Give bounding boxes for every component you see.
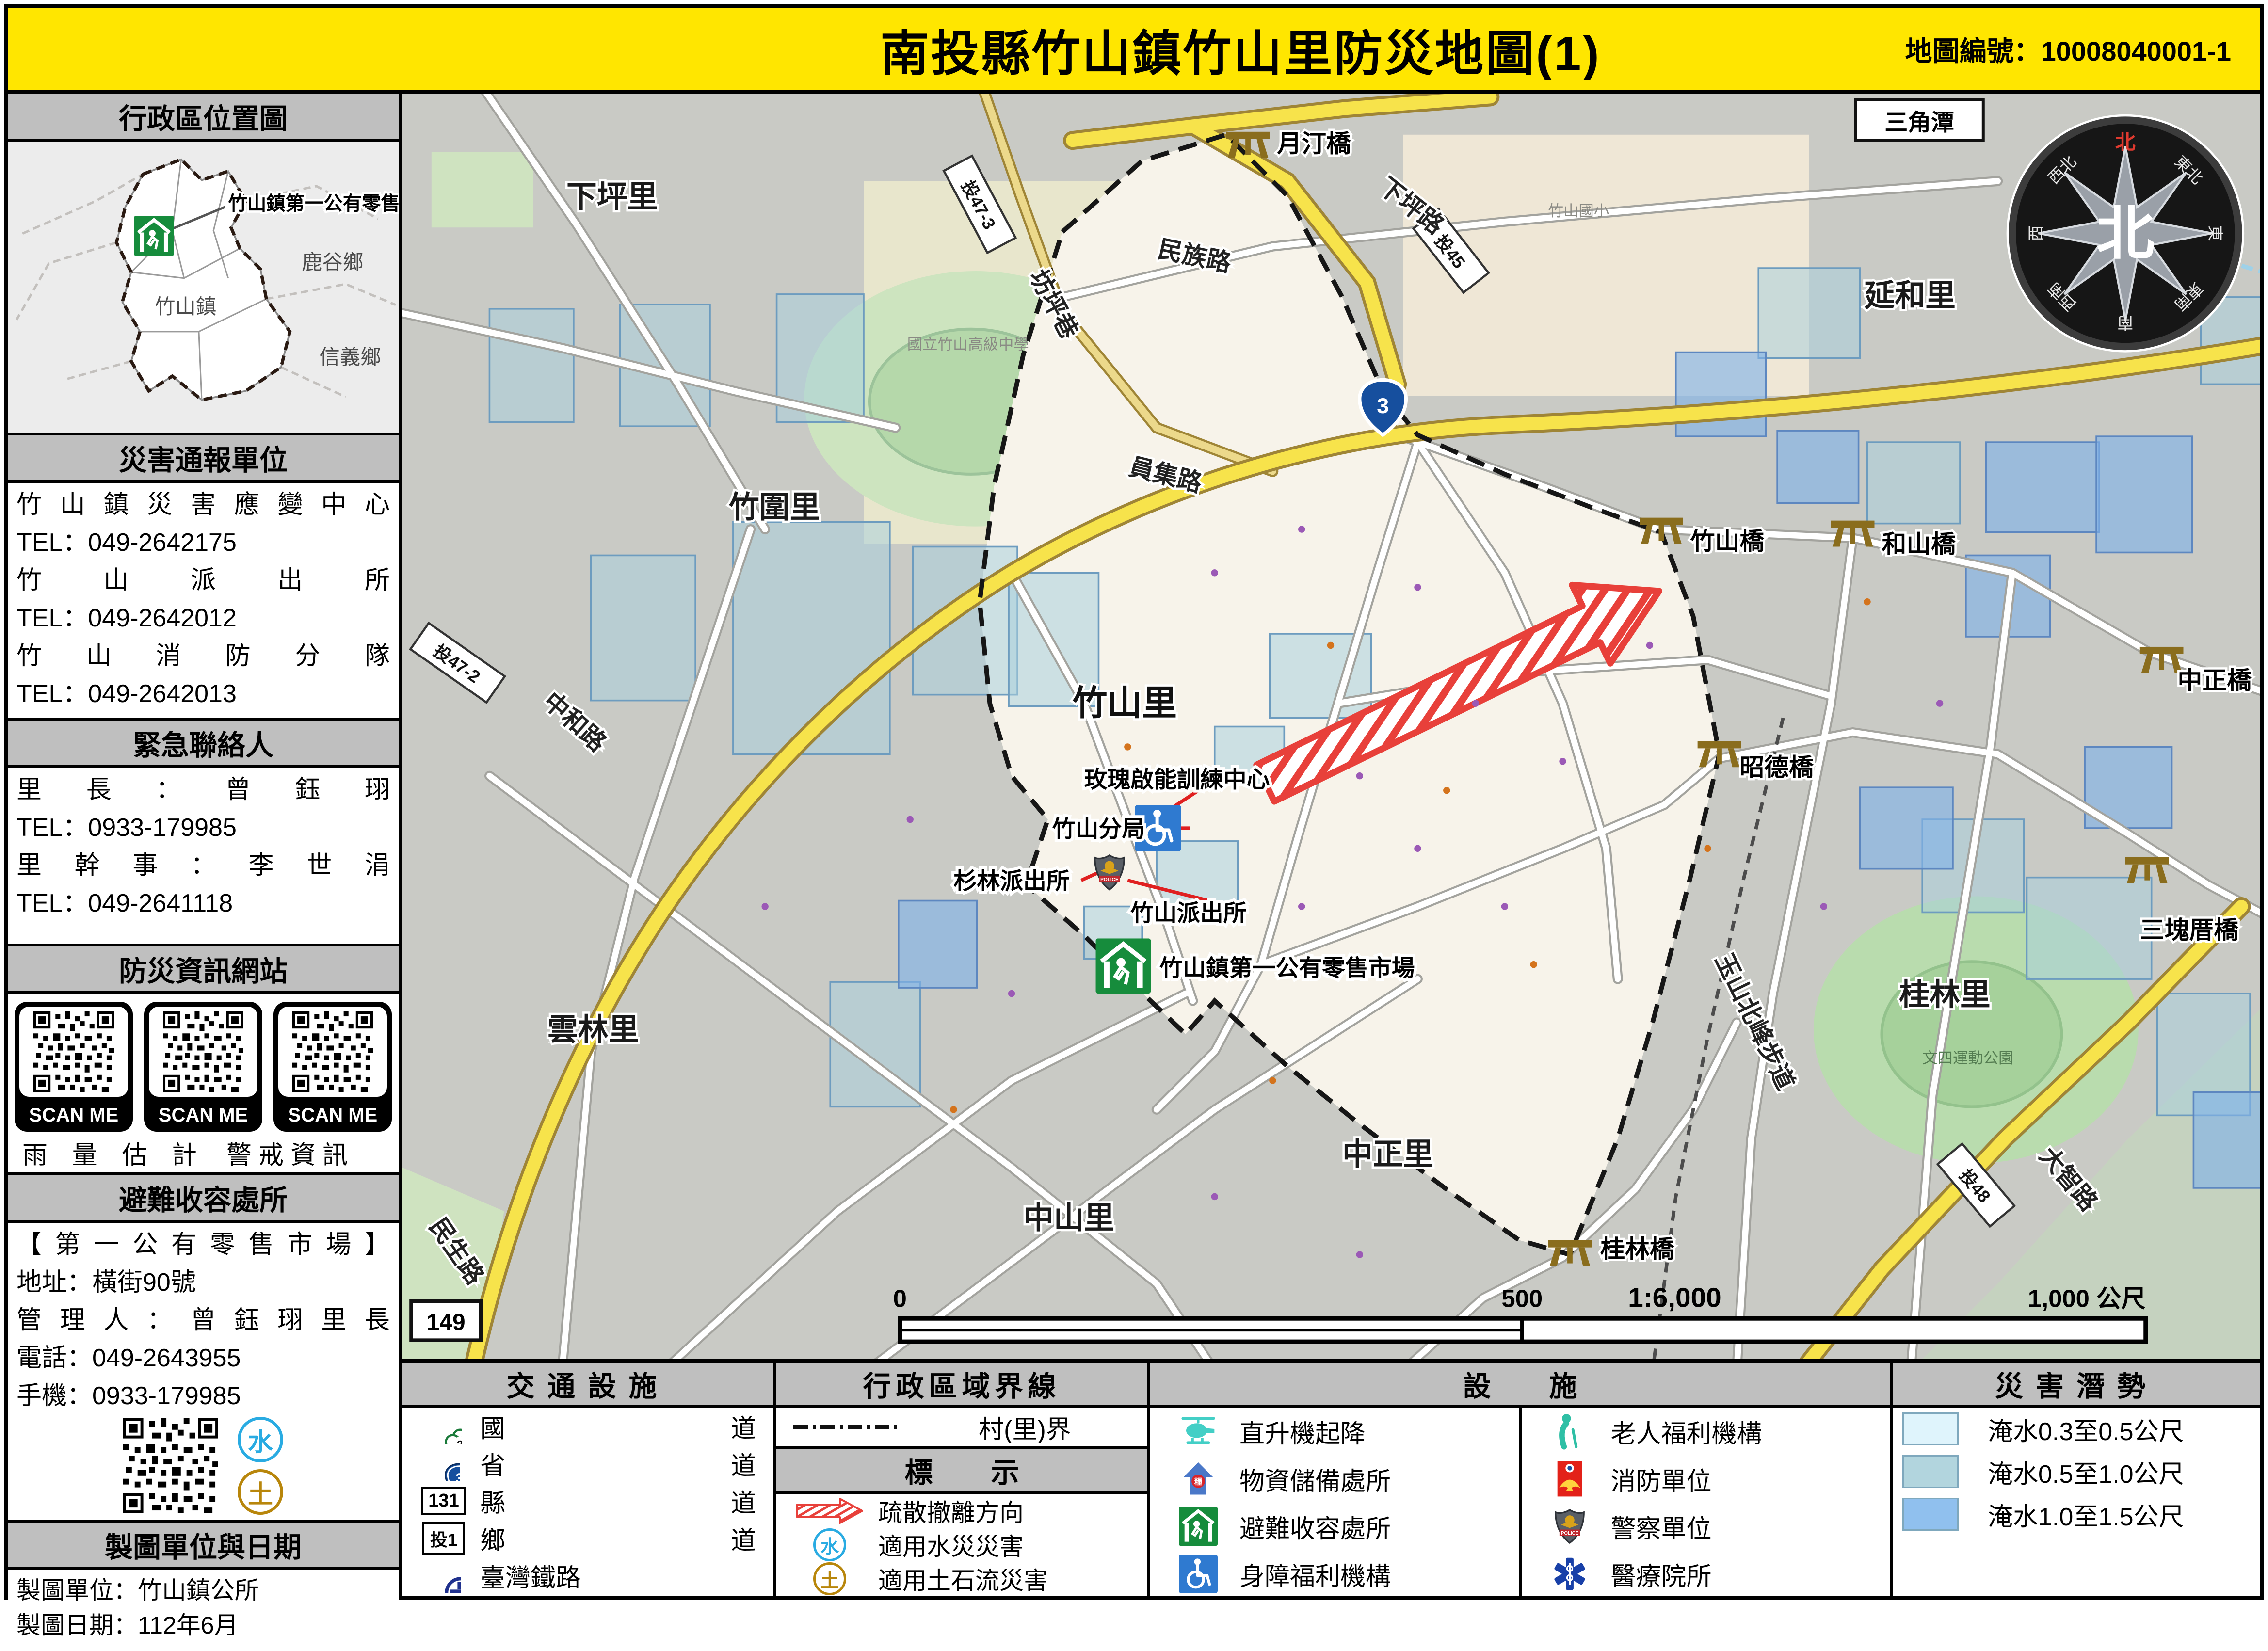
scan-me-label: SCAN ME [15,1102,133,1132]
svg-text:竹山橋: 竹山橋 [1690,527,1765,555]
caption-alert: 警戒資訊 [197,1135,384,1171]
report-unit-name: 竹山派出所 [16,561,390,599]
report-unit-tel: TEL：049-2642013 [16,675,390,713]
hazard-swatch-mid [1902,1455,1959,1488]
qr-card-rainfall: SCAN ME [15,1002,133,1132]
svg-text:1,000 公尺: 1,000 公尺 [2028,1284,2146,1312]
report-unit-tel: TEL：049-2642012 [16,599,390,637]
legend-facilities-title: 設施 [1150,1363,1890,1408]
emergency-contacts: 里長：曾鈺珝 TEL：0933-179985 里幹事：李世涓 TEL：049-2… [8,768,399,944]
hazard-swatch-deep [1902,1498,1959,1531]
qr-card-info: SCAN ME [273,1002,392,1132]
section-title-shelter: 避難收容處所 [8,1172,399,1223]
debris-applicable-badge: 土 [238,1469,283,1515]
shelter-phone: 電話：049-2643955 [16,1339,390,1377]
svg-text:南: 南 [2117,314,2133,332]
scan-me-label: SCAN ME [144,1102,262,1132]
township-road-label: 鄉道 [480,1520,769,1556]
legend-boundary-marks: 行政區域界線 村(里)界 標示 疏散撤離方向 水 適用水災災害 [773,1363,1147,1596]
section-title-contacts: 緊急聯絡人 [8,718,399,768]
provincial-road-icon [428,1446,460,1481]
village-border-label: 村(里)界 [910,1409,1140,1445]
debris-disaster-label: 適用土石流災害 [878,1561,1142,1596]
fire-unit-icon [1551,1460,1588,1497]
taiwan-rail-icon [427,1559,461,1593]
disability-welfare-label: 身障福利機構 [1239,1556,1512,1592]
elderly-welfare-label: 老人福利機構 [1611,1413,1883,1450]
hazard-deep-label: 淹水1.0至1.5公尺 [1988,1496,2184,1533]
compass-rose-icon: 北 北 東北 東 東南 南 西南 西 西北 [2007,114,2244,353]
credits-date: 製圖日期：112年6月 [16,1608,390,1643]
minimap-region-xinyi: 信義鄉 [319,346,381,369]
supply-depot-icon [1179,1460,1217,1498]
legend-transport-title: 交通設施 [402,1363,773,1408]
hazard-swatch-light [1902,1412,1959,1445]
svg-text:玫瑰啟能訓練中心: 玫瑰啟能訓練中心 [1084,767,1270,793]
legend-hazard: 災害潛勢 淹水0.3至0.5公尺 淹水0.5至1.0公尺 淹水1.0至1.5公尺 [1890,1363,2260,1596]
svg-text:和山橋: 和山橋 [1882,530,1956,558]
svg-text:中正橋: 中正橋 [2178,667,2252,694]
medical-label: 醫療院所 [1611,1556,1883,1592]
shelter-panel: 【第一公有零售市場】 地址：橫街90號 管理人：曾鈺珝里長 電話：049-264… [8,1223,399,1520]
contact-tel: TEL：0933-179985 [16,809,390,847]
svg-text:3: 3 [1377,393,1389,418]
shelter-label: 避難收容處所 [1239,1508,1512,1545]
svg-text:竹山鎮第一公有零售市場: 竹山鎮第一公有零售市場 [1159,956,1415,981]
minimap-region-lugu: 鹿谷鄉 [302,251,363,274]
shelter-manager: 管理人：曾鈺珝里長 [16,1301,390,1339]
water-disaster-icon: 水 [813,1528,846,1561]
shelter-icon [1179,1507,1218,1546]
medical-icon [1551,1555,1588,1592]
location-minimap: 竹山鎮第一公有零售市場 鹿谷鄉 竹山鎮 信義鄉 [8,142,399,433]
legend-transport: 交通設施 國道 省道 131 縣道 投1 鄉道 臺灣鐵路 [402,1363,773,1596]
svg-text:昭德橋: 昭德橋 [1739,753,1814,781]
evacuation-arrow-label: 疏散撤離方向 [878,1493,1142,1528]
svg-text:北: 北 [2115,131,2136,154]
route-shield-149: 149 [411,1301,481,1340]
disability-welfare-icon [1179,1555,1218,1593]
legend-marks-title: 標示 [776,1446,1147,1494]
legend-facilities: 設施 直升機起降 物資儲備處所 避難收容處所 身障福利機構 [1147,1363,1890,1596]
svg-text:竹山分局: 竹山分局 [1052,817,1145,842]
county-road-icon: 131 [421,1487,466,1515]
svg-text:竹山里: 竹山里 [1073,684,1177,723]
qr-code-icon [163,1011,243,1092]
section-title-websites: 防災資訊網站 [8,944,399,994]
township-road-icon: 投1 [422,1522,465,1555]
svg-text:下坪里: 下坪里 [566,180,658,214]
legend-bar: 交通設施 國道 省道 131 縣道 投1 鄉道 臺灣鐵路 行政區域界線 [402,1359,2260,1596]
county-road-label: 縣道 [480,1483,769,1519]
svg-text:延和里: 延和里 [1865,279,1956,313]
svg-text:雲林里: 雲林里 [547,1013,639,1047]
svg-text:桂林里: 桂林里 [1899,978,1990,1012]
svg-text:149: 149 [427,1310,466,1335]
svg-text:東: 東 [2206,225,2224,241]
svg-text:西: 西 [2027,225,2044,241]
credits-panel: 製圖單位：竹山鎮公所 製圖日期：112年6月 [8,1570,399,1651]
map-number: 地圖編號：10008040001-1 [1905,30,2231,69]
svg-text:北: 北 [2096,202,2155,266]
minimap-region-zhushan: 竹山鎮 [155,295,216,319]
map-shelter-icon [1096,938,1151,994]
svg-text:桂林橋: 桂林橋 [1600,1235,1674,1263]
hazard-light-label: 淹水0.3至0.5公尺 [1988,1411,2184,1447]
section-title-credits: 製圖單位與日期 [8,1520,399,1570]
shelter-address: 地址：橫街90號 [16,1264,390,1301]
credits-unit: 製圖單位：竹山鎮公所 [16,1573,390,1608]
header-bar: 南投縣竹山鎮竹山里防災地圖(1) 地圖編號：10008040001-1 [8,8,2260,94]
report-unit-tel: TEL：049-2642175 [16,524,390,561]
minimap-shelter-icon [134,216,174,256]
qr-code-icon [33,1011,114,1092]
report-unit-name: 竹山鎮災害應變中心 [16,486,390,524]
caption-rainfall: 雨量估計 [22,1135,197,1171]
svg-text:三角潭: 三角潭 [1884,110,1954,136]
map-canvas: 3 投45 投47-3 投47-2 [402,94,2260,1359]
svg-text:杉林派出所: 杉林派出所 [953,869,1069,895]
svg-text:三塊厝橋: 三塊厝橋 [2140,916,2238,944]
police-unit-icon [1551,1507,1589,1545]
svg-text:500: 500 [1501,1284,1543,1312]
provincial-road-label: 省道 [480,1445,769,1482]
svg-text:中山里: 中山里 [1023,1202,1114,1235]
debris-disaster-icon: 土 [813,1562,846,1595]
hazard-mid-label: 淹水0.5至1.0公尺 [1988,1454,2184,1490]
report-units: 竹山鎮災害應變中心 TEL：049-2642175 竹山派出所 TEL：049-… [8,483,399,718]
water-disaster-label: 適用水災災害 [878,1527,1142,1562]
elderly-welfare-icon [1550,1412,1589,1451]
svg-text:中正里: 中正里 [1342,1138,1433,1171]
section-title-report: 災害通報單位 [8,433,399,483]
svg-text:國立竹山高級中學: 國立竹山高級中學 [907,336,1029,353]
contact-name: 里長：曾鈺珝 [16,771,390,809]
minimap-marker-label: 竹山鎮第一公有零售市場 [228,193,399,214]
svg-text:1:6,000: 1:6,000 [1628,1282,1721,1313]
svg-text:竹圍里: 竹圍里 [729,491,820,525]
taiwan-rail-label: 臺灣鐵路 [480,1557,769,1594]
legend-boundary-title: 行政區域界線 [776,1363,1147,1408]
supply-depot-label: 物資儲備處所 [1239,1461,1512,1497]
minimap-canvas: 竹山鎮第一公有零售市場 鹿谷鄉 竹山鎮 信義鄉 [8,142,399,433]
svg-text:竹山派出所: 竹山派出所 [1130,900,1246,926]
legend-hazard-title: 災害潛勢 [1893,1363,2260,1408]
report-unit-name: 竹山消防分隊 [16,637,390,675]
fire-unit-label: 消防單位 [1611,1461,1883,1497]
qr-card-alert: SCAN ME [144,1002,262,1132]
qr-code-icon [292,1011,373,1092]
svg-text:月汀橋: 月汀橋 [1277,130,1351,158]
map-panel: 3 投45 投47-3 投47-2 [402,94,2260,1359]
village-border-line-icon [791,1424,903,1430]
helipad-label: 直升機起降 [1239,1413,1512,1450]
contact-tel: TEL：049-2641118 [16,884,390,922]
page-title: 南投縣竹山鎮竹山里防災地圖(1) [755,14,1727,84]
shelter-mobile: 手機：0933-179985 [16,1377,390,1415]
svg-text:0: 0 [893,1284,907,1312]
police-unit-label: 警察單位 [1611,1508,1883,1545]
helipad-icon [1179,1412,1218,1451]
national-road-label: 國道 [480,1408,769,1444]
evacuation-arrow-icon [793,1496,866,1526]
svg-text:文四運動公園: 文四運動公園 [1922,1050,2013,1067]
shelter-qr-icon [123,1418,218,1513]
section-title-location: 行政區位置圖 [8,94,399,142]
poster-page: 南投縣竹山鎮竹山里防災地圖(1) 地圖編號：10008040001-1 行政區位… [4,4,2264,1600]
svg-text:竹山國小: 竹山國小 [1548,202,1609,219]
national-road-icon [426,1409,462,1444]
shelter-name: 【第一公有零售市場】 [16,1226,390,1264]
sidebar: 行政區位置圖 竹山鎮第一公有零售市場 鹿谷鄉 竹山鎮 [8,94,402,1596]
flood-applicable-badge: 水 [238,1417,283,1462]
scan-me-label: SCAN ME [273,1102,392,1132]
websites-panel: SCAN ME SCAN ME SCAN ME 雨量估計 警戒資訊 [8,994,399,1172]
contact-name: 里幹事：李世涓 [16,847,390,884]
sanjiaotan-box: 三角潭 [1856,100,1983,141]
